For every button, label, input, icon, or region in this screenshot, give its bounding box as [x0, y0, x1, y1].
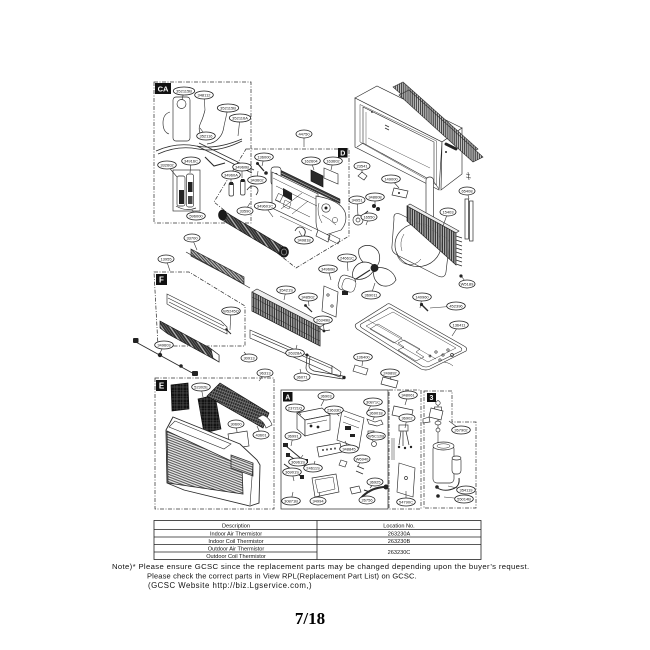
- svg-text:263230A: 263230A: [388, 531, 411, 537]
- svg-text:36901S: 36901S: [285, 470, 299, 475]
- svg-text:30871B: 30871B: [284, 499, 298, 504]
- svg-text:44750: 44750: [298, 132, 310, 137]
- svg-text:349601C: 349601C: [257, 204, 273, 209]
- svg-text:Note)* Please ensure GCSC sinc: Note)* Please ensure GCSC since the repl…: [112, 562, 530, 571]
- svg-text:343602: 343602: [250, 178, 264, 183]
- svg-text:348608: 348608: [368, 195, 382, 200]
- svg-text:Please check the correct part: Please check the correct parts in View R…: [147, 572, 417, 581]
- svg-text:30913: 30913: [243, 356, 255, 361]
- svg-text:36071: 36071: [296, 375, 308, 380]
- svg-text:3: 3: [430, 395, 434, 402]
- svg-text:Outdoor Coil Thermistor: Outdoor Coil Thermistor: [206, 554, 266, 560]
- svg-text:26756: 26756: [361, 498, 373, 503]
- svg-text:36925: 36925: [369, 480, 381, 485]
- svg-text:54790C: 54790C: [399, 500, 413, 505]
- svg-text:352116A: 352116A: [232, 116, 248, 121]
- svg-text:136000: 136000: [257, 155, 271, 160]
- svg-text:23721Q: 23721Q: [288, 406, 302, 411]
- svg-text:140960: 140960: [415, 295, 429, 300]
- svg-text:30600: 30600: [230, 422, 242, 427]
- svg-text:13955: 13955: [160, 257, 172, 262]
- svg-text:A: A: [285, 395, 290, 402]
- svg-text:7/18: 7/18: [295, 609, 325, 628]
- svg-text:162604: 162604: [304, 159, 318, 164]
- svg-text:136400: 136400: [356, 355, 370, 360]
- svg-text:E: E: [159, 382, 165, 391]
- svg-text:33700: 33700: [186, 236, 198, 241]
- svg-text:W5C12B: W5C12B: [368, 434, 384, 439]
- svg-text:Description: Description: [222, 524, 250, 530]
- svg-text:15403: 15403: [442, 210, 454, 215]
- svg-text:30871C: 30871C: [366, 400, 380, 405]
- svg-text:24661C: 24661C: [340, 256, 354, 261]
- svg-text:96313: 96313: [259, 371, 271, 376]
- svg-text:352116: 352116: [199, 134, 213, 139]
- svg-text:CA: CA: [158, 85, 169, 94]
- svg-text:369011: 369011: [364, 293, 378, 298]
- svg-text:332602: 332602: [160, 163, 174, 168]
- svg-text:267902: 267902: [454, 428, 468, 433]
- svg-text:34916C: 34916C: [184, 159, 198, 164]
- svg-text:23633D: 23633D: [327, 408, 341, 413]
- svg-text:349603: 349603: [157, 343, 171, 348]
- svg-text:36902: 36902: [401, 416, 413, 421]
- svg-text:352115B: 352115B: [176, 89, 192, 94]
- svg-text:34994: 34994: [312, 499, 324, 504]
- svg-text:24611S: 24611S: [306, 466, 320, 471]
- svg-text:163602: 163602: [326, 159, 340, 164]
- svg-text:65408: 65408: [461, 189, 473, 194]
- svg-text:Location No.: Location No.: [383, 524, 415, 530]
- svg-text:149000: 149000: [384, 177, 398, 182]
- svg-text:348845: 348845: [342, 447, 356, 452]
- svg-text:34960A: 34960A: [224, 173, 238, 178]
- svg-text:23541: 23541: [356, 164, 368, 169]
- svg-text:D: D: [340, 151, 345, 158]
- svg-text:35421S: 35421S: [279, 288, 293, 293]
- svg-text:352115B: 352115B: [220, 106, 236, 111]
- svg-text:W5245Q: W5245Q: [223, 309, 239, 314]
- svg-text:26328A: 26328A: [288, 351, 302, 356]
- svg-text:Outdoor Air Thermistor: Outdoor Air Thermistor: [208, 546, 265, 552]
- svg-text:369018: 369018: [369, 411, 383, 416]
- svg-text:348061: 348061: [401, 393, 415, 398]
- svg-text:348112: 348112: [197, 93, 211, 98]
- svg-text:43601: 43601: [255, 433, 267, 438]
- svg-text:34960B: 34960B: [321, 267, 335, 272]
- svg-text:36903: 36903: [320, 394, 332, 399]
- svg-text:33590: 33590: [239, 209, 251, 214]
- svg-text:34960B: 34960B: [235, 165, 249, 170]
- svg-text:Indoor Coil Thermistor: Indoor Coil Thermistor: [208, 539, 263, 545]
- svg-text:Indoor Air Thermistor: Indoor Air Thermistor: [210, 531, 262, 537]
- svg-text:348502: 348502: [301, 295, 315, 300]
- svg-text:349818: 349818: [297, 238, 311, 243]
- svg-text:26349B: 26349B: [316, 318, 330, 323]
- svg-text:249892: 249892: [383, 371, 397, 376]
- svg-text:52302E: 52302E: [194, 385, 208, 390]
- svg-text:(GCSC Website http://biz.Lgse: (GCSC Website http://biz.Lgservice.com,): [148, 581, 312, 590]
- svg-text:452396: 452396: [449, 304, 463, 309]
- svg-text:596000: 596000: [189, 214, 203, 219]
- svg-text:136411: 136411: [452, 323, 466, 328]
- svg-text:F: F: [159, 276, 164, 285]
- svg-text:W5189: W5189: [461, 282, 474, 287]
- svg-text:16550: 16550: [363, 215, 375, 220]
- svg-text:34951: 34951: [351, 198, 363, 203]
- svg-text:W6940: W6940: [356, 457, 369, 462]
- svg-text:55014B: 55014B: [457, 497, 471, 502]
- svg-text:263230B: 263230B: [388, 539, 411, 545]
- svg-text:263230C: 263230C: [388, 550, 411, 556]
- svg-text:354119: 354119: [459, 488, 473, 493]
- svg-text:36961S: 36961S: [291, 460, 305, 465]
- svg-text:36991: 36991: [287, 434, 299, 439]
